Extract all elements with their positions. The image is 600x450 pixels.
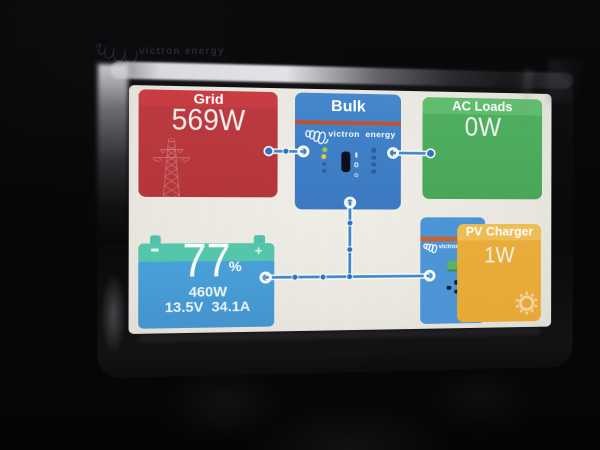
svg-text:victron energy: victron energy — [139, 46, 225, 57]
